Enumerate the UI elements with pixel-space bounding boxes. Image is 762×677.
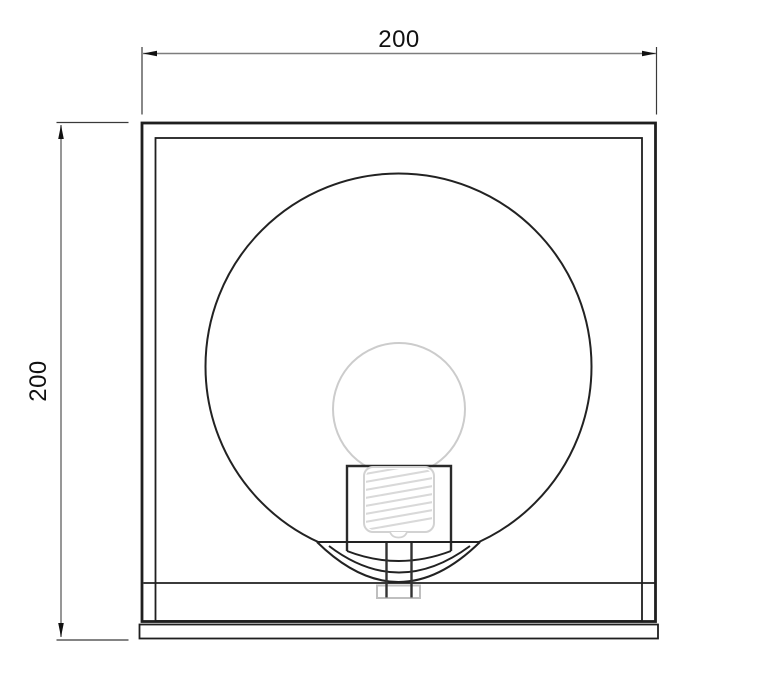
- width-dimension: 200: [142, 26, 657, 115]
- arrowhead-left-icon: [143, 51, 157, 57]
- socket-threads: [364, 462, 434, 538]
- bulb-contact-bump: [390, 532, 407, 538]
- light-bulb-glass: [333, 343, 465, 475]
- height-dimension: 200: [25, 123, 129, 641]
- arrowhead-up-icon: [58, 125, 64, 139]
- lamp-technical-drawing: 200 200: [0, 0, 762, 677]
- mounting-nut: [377, 586, 420, 599]
- width-dimension-label: 200: [378, 26, 420, 53]
- height-dimension-label: 200: [25, 360, 52, 402]
- arrowhead-down-icon: [58, 623, 64, 637]
- drawing-svg: 200 200: [0, 0, 762, 677]
- base-plate: [140, 625, 659, 639]
- arrowhead-right-icon: [642, 51, 656, 57]
